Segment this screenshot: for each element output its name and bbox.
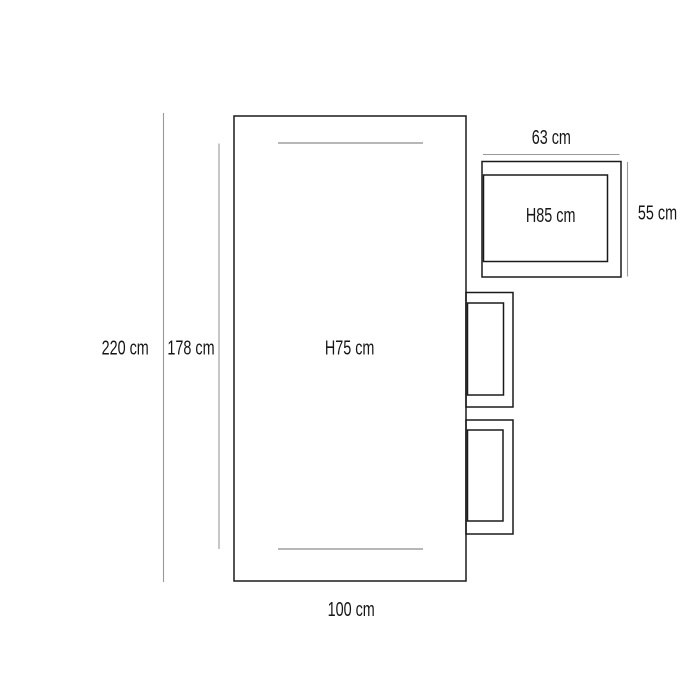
svg-text:H75 cm: H75 cm <box>325 336 375 359</box>
svg-text:55 cm: 55 cm <box>638 201 677 224</box>
svg-text:100 cm: 100 cm <box>328 598 375 621</box>
svg-text:178 cm: 178 cm <box>167 336 214 359</box>
svg-text:63 cm: 63 cm <box>532 126 571 149</box>
svg-text:H85 cm: H85 cm <box>526 204 576 227</box>
svg-text:220 cm: 220 cm <box>102 336 149 359</box>
